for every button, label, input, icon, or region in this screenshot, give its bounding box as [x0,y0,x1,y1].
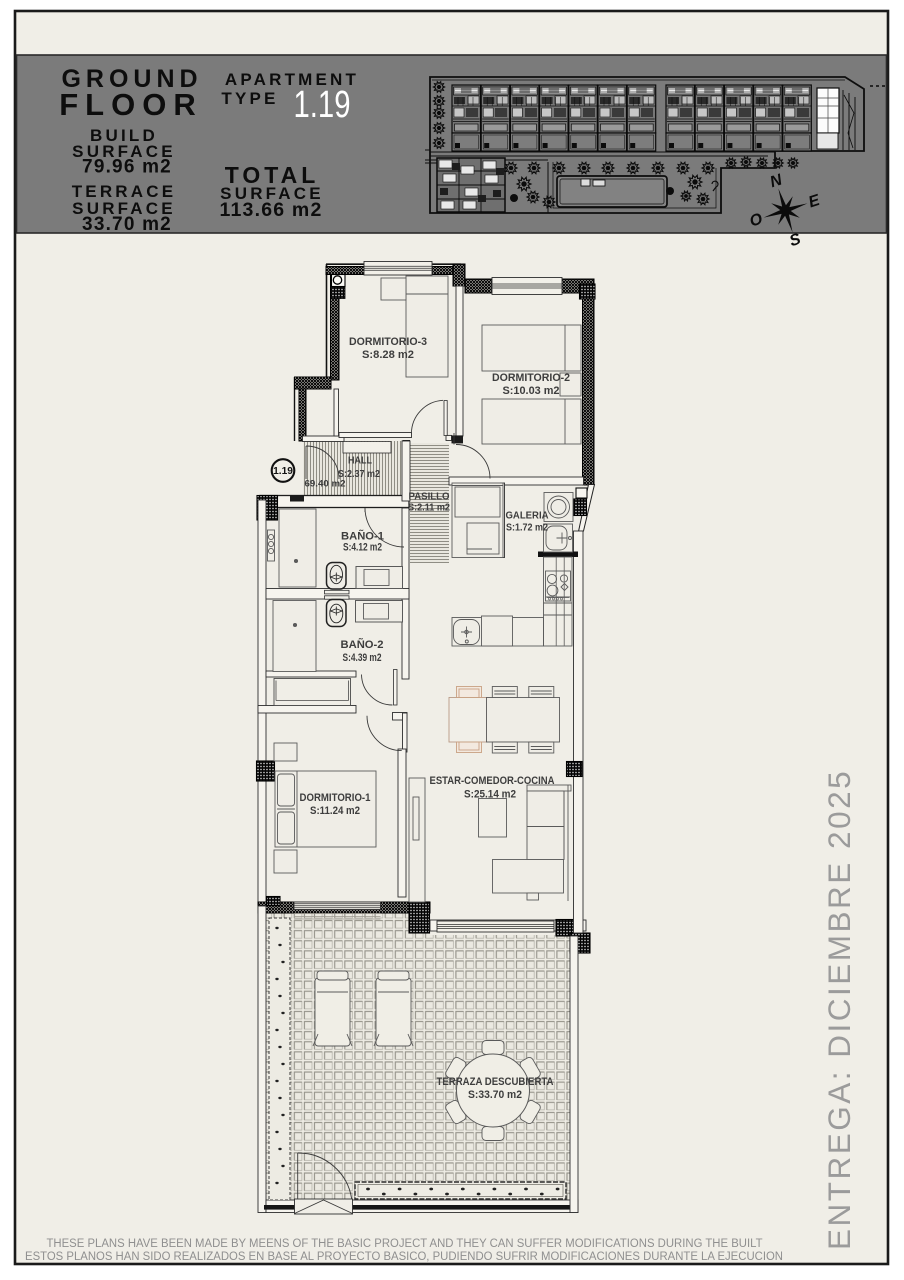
svg-text:69.40 m2: 69.40 m2 [305,479,346,490]
svg-text:TYPE: TYPE [221,89,278,108]
svg-text:S:8.28 m2: S:8.28 m2 [362,349,414,361]
svg-text:S:4.39 m2: S:4.39 m2 [343,652,382,664]
svg-text:DORMITORIO-3: DORMITORIO-3 [349,336,427,348]
svg-text:BAÑO-2: BAÑO-2 [341,638,384,651]
svg-text:113.66 m2: 113.66 m2 [220,199,323,221]
svg-text:S:33.70 m2: S:33.70 m2 [468,1089,522,1101]
svg-text:S:25.14 m2: S:25.14 m2 [464,789,516,801]
svg-text:1.19: 1.19 [273,466,293,477]
svg-text:S:1.72 m2: S:1.72 m2 [506,522,548,534]
svg-text:79.96 m2: 79.96 m2 [82,157,172,178]
svg-text:S:4.12 m2: S:4.12 m2 [343,542,382,554]
svg-text:PASILLO: PASILLO [409,492,450,503]
svg-text:1.19: 1.19 [294,84,351,126]
svg-text:ESTOS PLANOS HAN SIDO REALIZAD: ESTOS PLANOS HAN SIDO REALIZADOS EN BASE… [25,1249,783,1263]
svg-text:THESE PLANS HAVE BEEN MADE BY: THESE PLANS HAVE BEEN MADE BY MEENS OF T… [47,1236,763,1250]
svg-text:S:2.11 m2: S:2.11 m2 [408,503,450,514]
svg-text:GALERIA: GALERIA [506,510,549,522]
svg-text:HALL: HALL [348,456,372,467]
svg-text:ESTAR-COMEDOR-COCINA: ESTAR-COMEDOR-COCINA [430,775,555,787]
svg-text:S:11.24 m2: S:11.24 m2 [310,805,360,817]
svg-text:FLOOR: FLOOR [59,87,203,122]
svg-text:DORMITORIO-1: DORMITORIO-1 [300,792,371,804]
svg-text:ENTREGA: DICIEMBRE 2025: ENTREGA: DICIEMBRE 2025 [821,769,857,1250]
svg-text:S:10.03 m2: S:10.03 m2 [503,385,560,397]
svg-text:33.70 m2: 33.70 m2 [82,214,172,235]
svg-text:TERRAZA DESCUBIERTA: TERRAZA DESCUBIERTA [437,1076,554,1088]
svg-text:DORMITORIO-2: DORMITORIO-2 [492,372,570,384]
